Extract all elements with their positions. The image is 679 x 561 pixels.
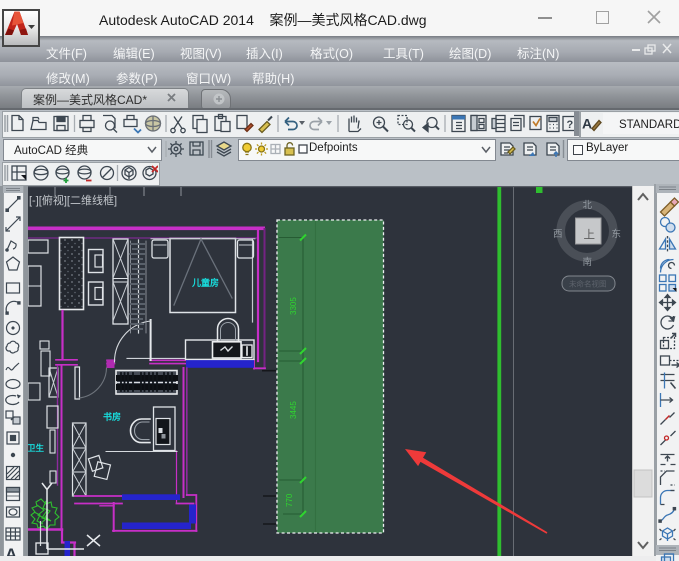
svg-text:[-][俯视][二维线框]: [-][俯视][二维线框] <box>29 193 117 207</box>
svg-text:?: ? <box>567 119 574 131</box>
svg-text:北: 北 <box>583 200 593 211</box>
svg-text:未命名视图: 未命名视图 <box>569 279 607 289</box>
svg-text:上: 上 <box>584 229 596 242</box>
svg-text:东: 东 <box>612 228 622 240</box>
svg-text:卫生: 卫生 <box>28 443 45 453</box>
svg-text:儿童房: 儿童房 <box>191 277 219 288</box>
svg-text:西: 西 <box>553 229 563 240</box>
svg-text:3445: 3445 <box>289 401 298 419</box>
svg-text:书房: 书房 <box>103 411 121 422</box>
svg-text:3305: 3305 <box>289 297 298 315</box>
svg-text:南: 南 <box>583 256 593 268</box>
svg-text:STANDARD: STANDARD <box>619 119 679 131</box>
svg-text:A: A <box>582 116 592 132</box>
svg-text:770: 770 <box>285 493 294 507</box>
